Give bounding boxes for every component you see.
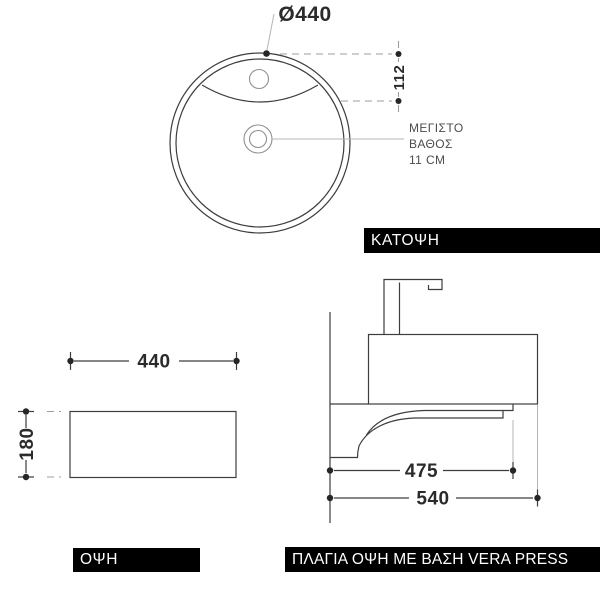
drain-inner-circle [250, 131, 267, 148]
deck-edge-arc [202, 85, 318, 102]
dim-112-text: 112 [391, 65, 408, 91]
sink-outer-rim-circle [170, 53, 350, 233]
drawing-canvas: Ø440 112 440 [0, 0, 600, 600]
sink-inner-rim-circle [176, 59, 344, 227]
dim-475-dot-right [510, 467, 516, 473]
dim-440-dot-right [233, 358, 239, 364]
dim-180-dot-top [23, 408, 29, 414]
top-view-caption: ΚΑΤΟΨΗ [364, 228, 600, 253]
side-view-caption: ΠΛΑΓΙΑ ΟΨΗ ΜΕ ΒΑΣΗ VERA PRESS [285, 547, 600, 572]
dim-475-dot-left [327, 467, 333, 473]
diameter-leader-line [267, 14, 274, 50]
drain-outer-circle [244, 125, 272, 153]
top-view: Ø440 112 [170, 3, 408, 233]
faucet-profile [384, 280, 442, 336]
max-depth-note-line2: ΒΑΘΟΣ [409, 136, 464, 152]
front-view-caption: ΟΨΗ [73, 548, 200, 572]
basin-front-outline [70, 412, 236, 478]
max-depth-note: ΜΕΓΙΣΤΟ ΒΑΘΟΣ 11 CM [409, 120, 464, 168]
dim-440-dot-left [67, 358, 73, 364]
dim-440-text: 440 [137, 352, 170, 373]
dim-540-dot-left [327, 495, 333, 501]
dim-475-text: 475 [405, 461, 438, 482]
basin-side-outline [369, 335, 538, 405]
diameter-dim-text: Ø440 [278, 3, 331, 26]
dim-112-dot-bottom [396, 98, 402, 104]
dim-540-dot-right [534, 495, 540, 501]
side-view: 475 540 [327, 280, 541, 524]
technical-drawing-sheet: Ø440 112 440 [0, 0, 600, 600]
max-depth-note-line3: 11 CM [409, 152, 464, 168]
max-depth-note-line1: ΜΕΓΙΣΤΟ [409, 120, 464, 136]
dim-112-dot-top [396, 51, 402, 57]
diameter-leader-dot [263, 50, 270, 57]
dim-180-text: 180 [17, 427, 38, 460]
side-view-caption-label: ΠΛΑΓΙΑ ΟΨΗ ΜΕ ΒΑΣΗ VERA PRESS [292, 551, 568, 569]
bracket-outer-profile [330, 404, 513, 458]
front-view-caption-label: ΟΨΗ [80, 551, 118, 569]
dim-540-text: 540 [416, 489, 449, 510]
front-view: 440 180 [17, 352, 240, 481]
dim-180-dot-bottom [23, 474, 29, 480]
top-view-caption-label: ΚΑΤΟΨΗ [371, 232, 440, 250]
faucet-hole-circle [250, 70, 269, 89]
